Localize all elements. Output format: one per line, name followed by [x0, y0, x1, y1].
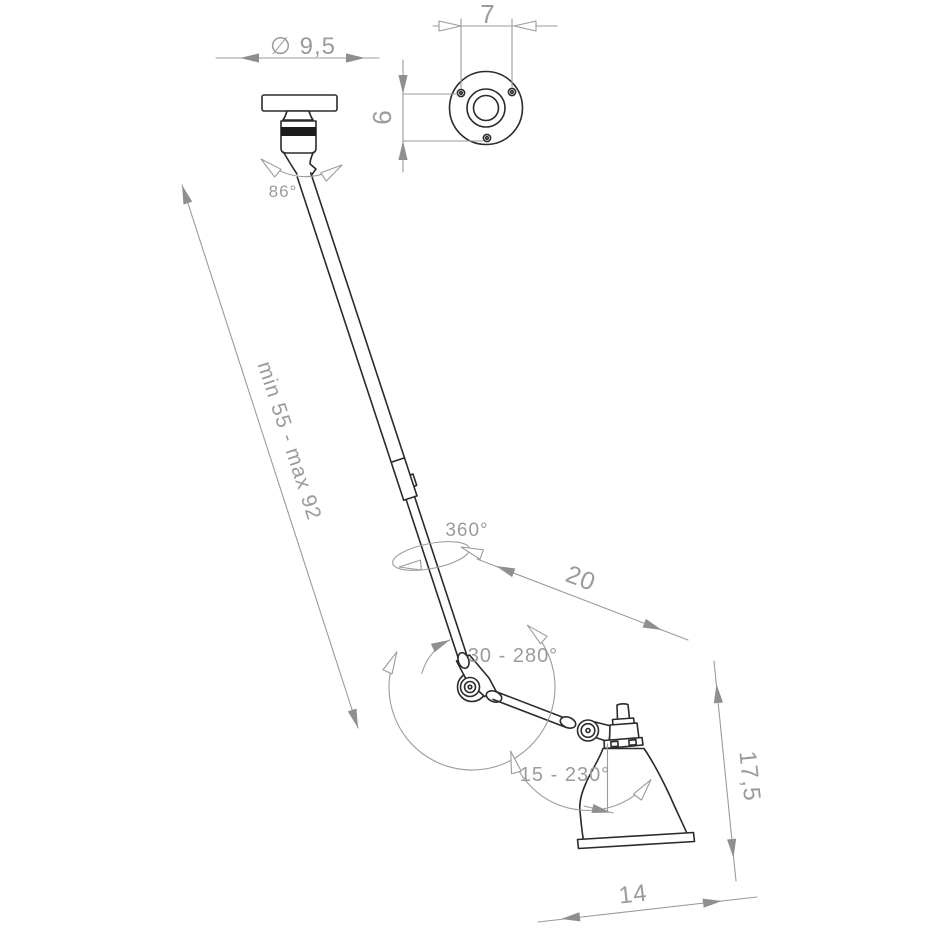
side-view-ceiling-mount	[262, 95, 337, 176]
arrowhead	[398, 75, 407, 94]
mount-body	[281, 121, 316, 153]
tube-seam	[391, 458, 404, 462]
arrowhead	[178, 184, 193, 205]
flange-screw-left	[611, 741, 618, 746]
arrowhead	[240, 53, 259, 62]
arrowhead	[703, 896, 723, 907]
arrowhead	[727, 839, 738, 859]
forearm-length-label: 20	[562, 560, 600, 597]
ceiling-plate	[262, 95, 337, 111]
mount-neck	[283, 111, 313, 120]
arrowhead-open	[524, 622, 547, 644]
arrowhead	[494, 562, 515, 577]
dimension-arm-length: min 55 - max 92	[178, 184, 363, 730]
arrowhead	[348, 709, 363, 730]
plate-diameter-label: ∅ 9,5	[270, 33, 336, 60]
shade-width-label: 14	[617, 880, 649, 910]
arrowhead-open	[321, 161, 345, 181]
dimension-shade-width: 14	[538, 880, 757, 924]
socket-knob	[617, 704, 630, 720]
shade-rotation-label: 15 - 230°	[520, 764, 610, 786]
dimension-plate-diameter: ∅ 9,5	[216, 33, 379, 63]
arrowhead	[560, 912, 580, 923]
arm-rotation-label: 360°	[445, 520, 488, 541]
arrowhead-open	[383, 650, 401, 674]
elbow-ring	[461, 678, 480, 697]
upper-tube-left-edge	[297, 177, 403, 500]
shade-height-label: 17,5	[733, 750, 765, 803]
arrowhead-open	[439, 21, 461, 31]
technical-drawing: ∅ 9,5 86° 7 6 min 55 - max 92 360°	[0, 0, 930, 930]
arm-length-line	[182, 185, 358, 728]
arrowhead-open	[514, 21, 536, 31]
arrowhead	[398, 141, 407, 160]
arrowhead-open	[258, 155, 281, 177]
arrowhead-open	[459, 542, 483, 559]
mount-band	[281, 127, 316, 136]
elbow-rotation-label: 30 - 280°	[468, 645, 558, 667]
holes-width-label: 7	[480, 0, 495, 29]
arrowhead	[346, 53, 365, 62]
arrowhead	[431, 636, 452, 652]
dimension-forearm-length: 20	[477, 559, 688, 640]
arrowhead	[712, 684, 723, 704]
flange-screw-right	[629, 740, 636, 745]
lamp-arm	[297, 173, 611, 742]
rotation-ellipse	[390, 536, 471, 575]
holes-height-label: 6	[367, 109, 397, 124]
upper-tube-right-edge	[311, 173, 417, 496]
arrowhead	[643, 619, 664, 634]
dimension-arm-rotation: 360°	[390, 520, 488, 576]
mount-taper-left	[284, 153, 297, 174]
dimension-mount-swivel: 86°	[258, 155, 345, 201]
mount-swivel-label: 86°	[269, 182, 298, 201]
dimension-shade-height: 17,5	[712, 661, 766, 881]
arm-length-label: min 55 - max 92	[253, 359, 326, 524]
